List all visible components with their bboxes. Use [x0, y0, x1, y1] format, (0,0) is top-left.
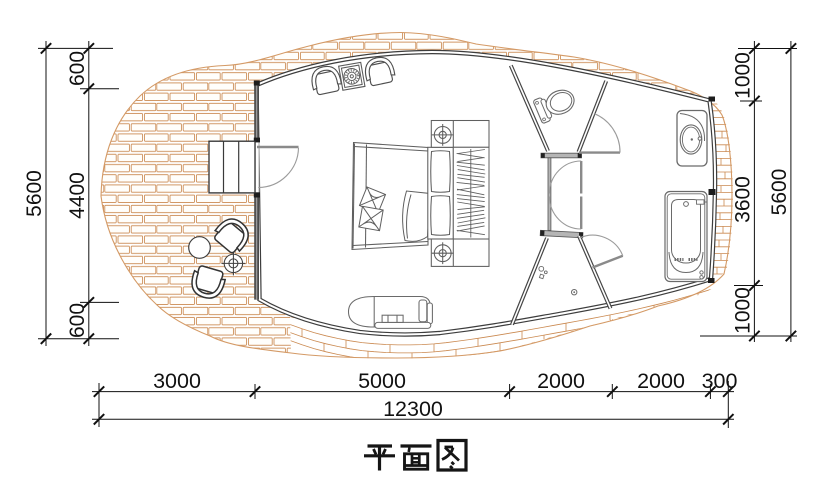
svg-text:4400: 4400 — [66, 172, 89, 219]
svg-text:2000: 2000 — [537, 369, 585, 393]
svg-text:5600: 5600 — [23, 170, 46, 217]
svg-text:12300: 12300 — [383, 397, 443, 421]
svg-text:600: 600 — [66, 303, 89, 338]
svg-text:600: 600 — [66, 51, 89, 86]
svg-text:300: 300 — [702, 369, 738, 393]
svg-text:5600: 5600 — [768, 169, 791, 216]
svg-text:1000: 1000 — [732, 52, 755, 99]
svg-text:2000: 2000 — [637, 369, 685, 393]
svg-text:5000: 5000 — [358, 369, 406, 393]
svg-text:3600: 3600 — [732, 176, 755, 223]
svg-text:3000: 3000 — [153, 369, 201, 393]
svg-text:1000: 1000 — [732, 287, 755, 334]
